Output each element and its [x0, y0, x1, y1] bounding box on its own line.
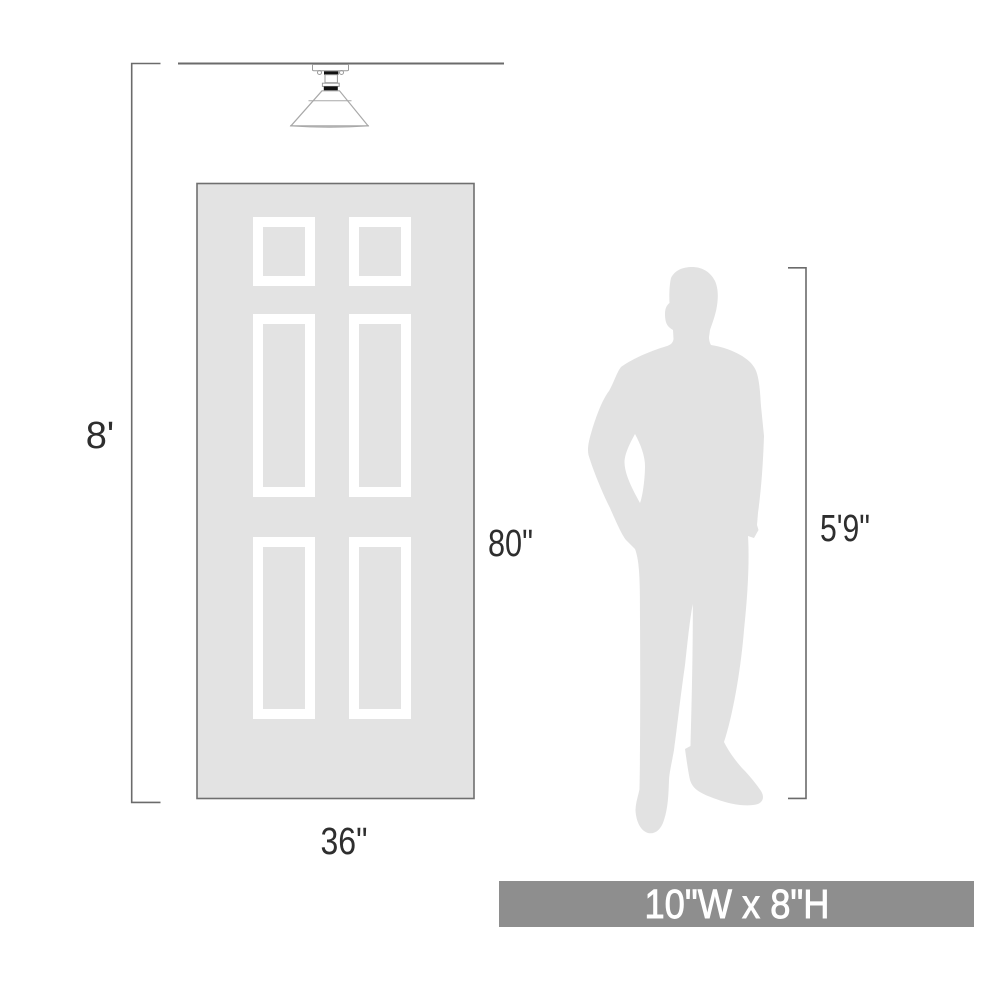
- svg-text:80": 80": [488, 523, 533, 565]
- svg-text:10"W x 8"H: 10"W x 8"H: [645, 881, 830, 927]
- svg-text:36": 36": [321, 821, 368, 863]
- svg-text:5'9": 5'9": [820, 508, 870, 550]
- svg-text:8': 8': [86, 415, 114, 457]
